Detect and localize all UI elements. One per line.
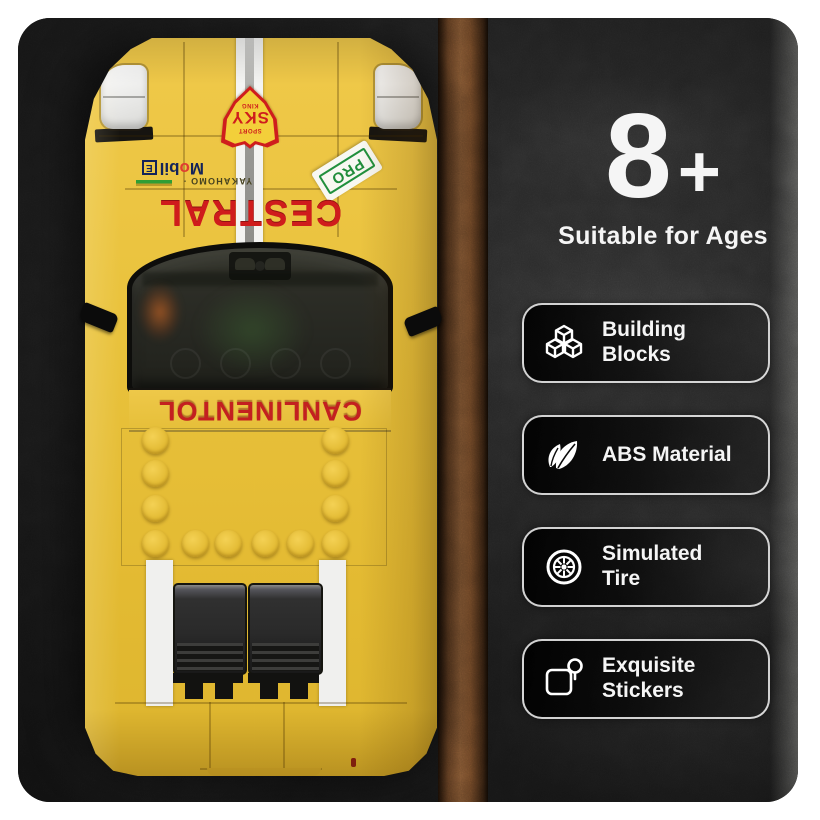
interior-stud (220, 348, 251, 379)
roof-stud (322, 427, 349, 454)
headlight-left (101, 65, 147, 129)
oil-brand-box: E (142, 161, 157, 176)
rear-window-left (173, 583, 247, 675)
mount-tooth (215, 682, 233, 699)
bumper-seam (209, 702, 211, 768)
hood-emblem-sticker: SPORT SKY KING (221, 86, 279, 150)
roof-stud (322, 495, 349, 522)
rear-window-mount-left (173, 673, 243, 701)
tire-icon (542, 545, 586, 589)
cubes-icon (542, 321, 586, 365)
emblem-main-text: SKY (231, 110, 269, 127)
mount-tooth (290, 682, 308, 699)
sticker-icon (542, 657, 586, 701)
bumper-seam (115, 702, 407, 704)
feature-label: Exquisite Stickers (602, 654, 695, 704)
age-label: Suitable for Ages (538, 222, 788, 251)
feature-badge-exquisite-stickers: Exquisite Stickers (522, 639, 770, 719)
feature-badge-abs-material: ABS Material (522, 415, 770, 495)
emblem-small-top: SPORT (238, 128, 261, 134)
feature-line2: Tire (602, 567, 702, 592)
cowl-small-text: YAKAHOMO · (182, 176, 252, 186)
roof-stud (142, 530, 169, 557)
feature-label: ABS Material (602, 443, 732, 468)
product-image: SPORT SKY KING MobilE YAKAHOMO · PRO (0, 0, 820, 820)
oil-brand-color-bar (136, 180, 172, 186)
interior-stud (270, 348, 301, 379)
oil-brand-post: bil (160, 158, 180, 178)
tail-light-hint (351, 758, 356, 767)
roof-stud (215, 530, 242, 557)
dark-scene-canvas: SPORT SKY KING MobilE YAKAHOMO · PRO (18, 18, 798, 802)
cowl-main-text: CESTRAL (158, 192, 342, 234)
feature-line1: ABS Material (602, 443, 732, 468)
headlight-seam (103, 96, 145, 98)
interior-stud (320, 348, 351, 379)
bumper-seam (283, 702, 285, 768)
mount-tooth (260, 682, 278, 699)
feature-line2: Blocks (602, 343, 686, 368)
headlight-seam (377, 96, 419, 98)
brick-car-top-view: SPORT SKY KING MobilE YAKAHOMO · PRO (85, 32, 437, 776)
rear-bumper-lip (207, 768, 321, 776)
cowl-main-sticker: CESTRAL (145, 190, 355, 236)
tail-stripe-right (319, 560, 346, 706)
interior-stud (170, 348, 201, 379)
driver-figure-hint (138, 282, 182, 342)
feature-line1: Building (602, 318, 686, 343)
roof-stud (322, 530, 349, 557)
age-number-row: 8 + (538, 96, 788, 216)
roof-stud (142, 427, 169, 454)
roof-stud (252, 530, 279, 557)
roof-stud (182, 530, 209, 557)
tail-stripe-left (146, 560, 173, 706)
headlight-right (375, 65, 421, 129)
mount-bar (248, 673, 319, 683)
roof-stud (142, 495, 169, 522)
mirror-stud (255, 261, 265, 271)
feature-line2: Stickers (602, 679, 695, 704)
feature-label: Building Blocks (602, 318, 686, 368)
feature-badge-list: Building Blocks ABS Material (522, 303, 770, 751)
rear-window-right (248, 583, 323, 675)
roof-stud (287, 530, 314, 557)
leaf-icon (542, 433, 586, 477)
feature-line1: Simulated (602, 542, 702, 567)
mount-tooth (185, 682, 203, 699)
age-number: 8 (605, 96, 672, 216)
feature-label: Simulated Tire (602, 542, 702, 592)
feature-badge-building-blocks: Building Blocks (522, 303, 770, 383)
rear-window-mount-right (248, 673, 319, 701)
roof-stud (142, 460, 169, 487)
roof-stud (322, 460, 349, 487)
car-body: SPORT SKY KING MobilE YAKAHOMO · PRO (85, 32, 437, 776)
age-rating: 8 + Suitable for Ages (538, 96, 788, 251)
feature-badge-simulated-tire: Simulated Tire (522, 527, 770, 607)
emblem-small-bottom: KING (242, 103, 259, 109)
feature-line1: Exquisite (602, 654, 695, 679)
roof-banner-text: CANLINENTOL (158, 395, 362, 426)
mirror-pad-right (265, 258, 285, 270)
mirror-pad-left (235, 258, 255, 270)
emblem-text: SPORT SKY KING (221, 86, 279, 150)
age-plus-sign: + (678, 135, 721, 209)
roof-banner-sticker: CANLINENTOL (129, 388, 391, 432)
windshield-glass (132, 248, 388, 390)
cowl-small-sticker: YAKAHOMO · (180, 174, 254, 188)
